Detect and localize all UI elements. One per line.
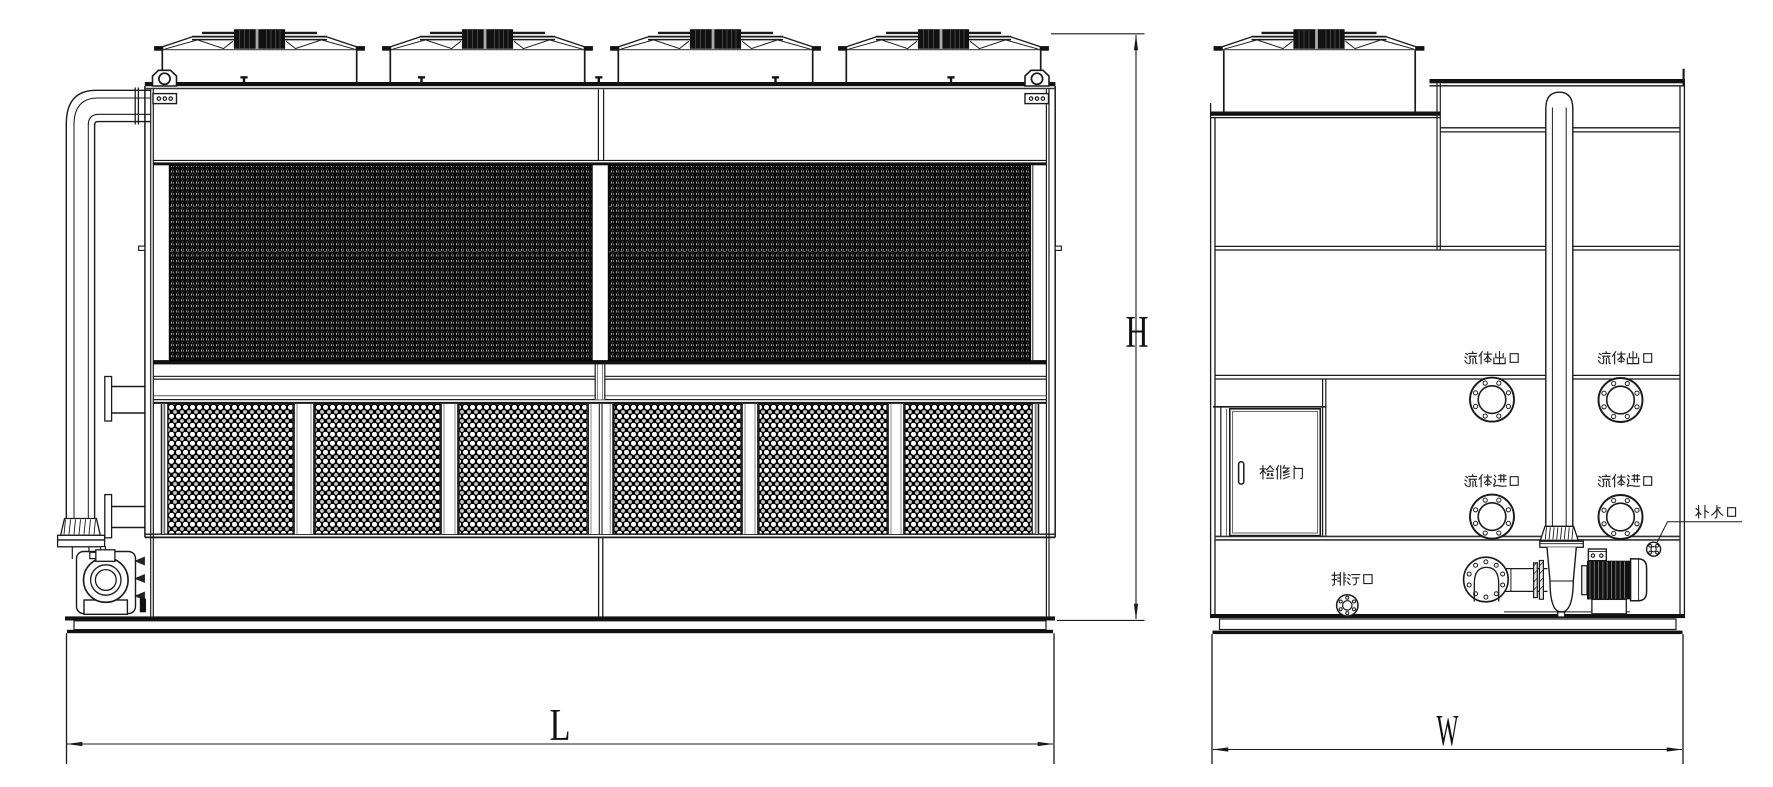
svg-text:L: L (550, 699, 571, 750)
svg-text:H: H (1126, 307, 1149, 357)
svg-text:W: W (1437, 706, 1459, 755)
